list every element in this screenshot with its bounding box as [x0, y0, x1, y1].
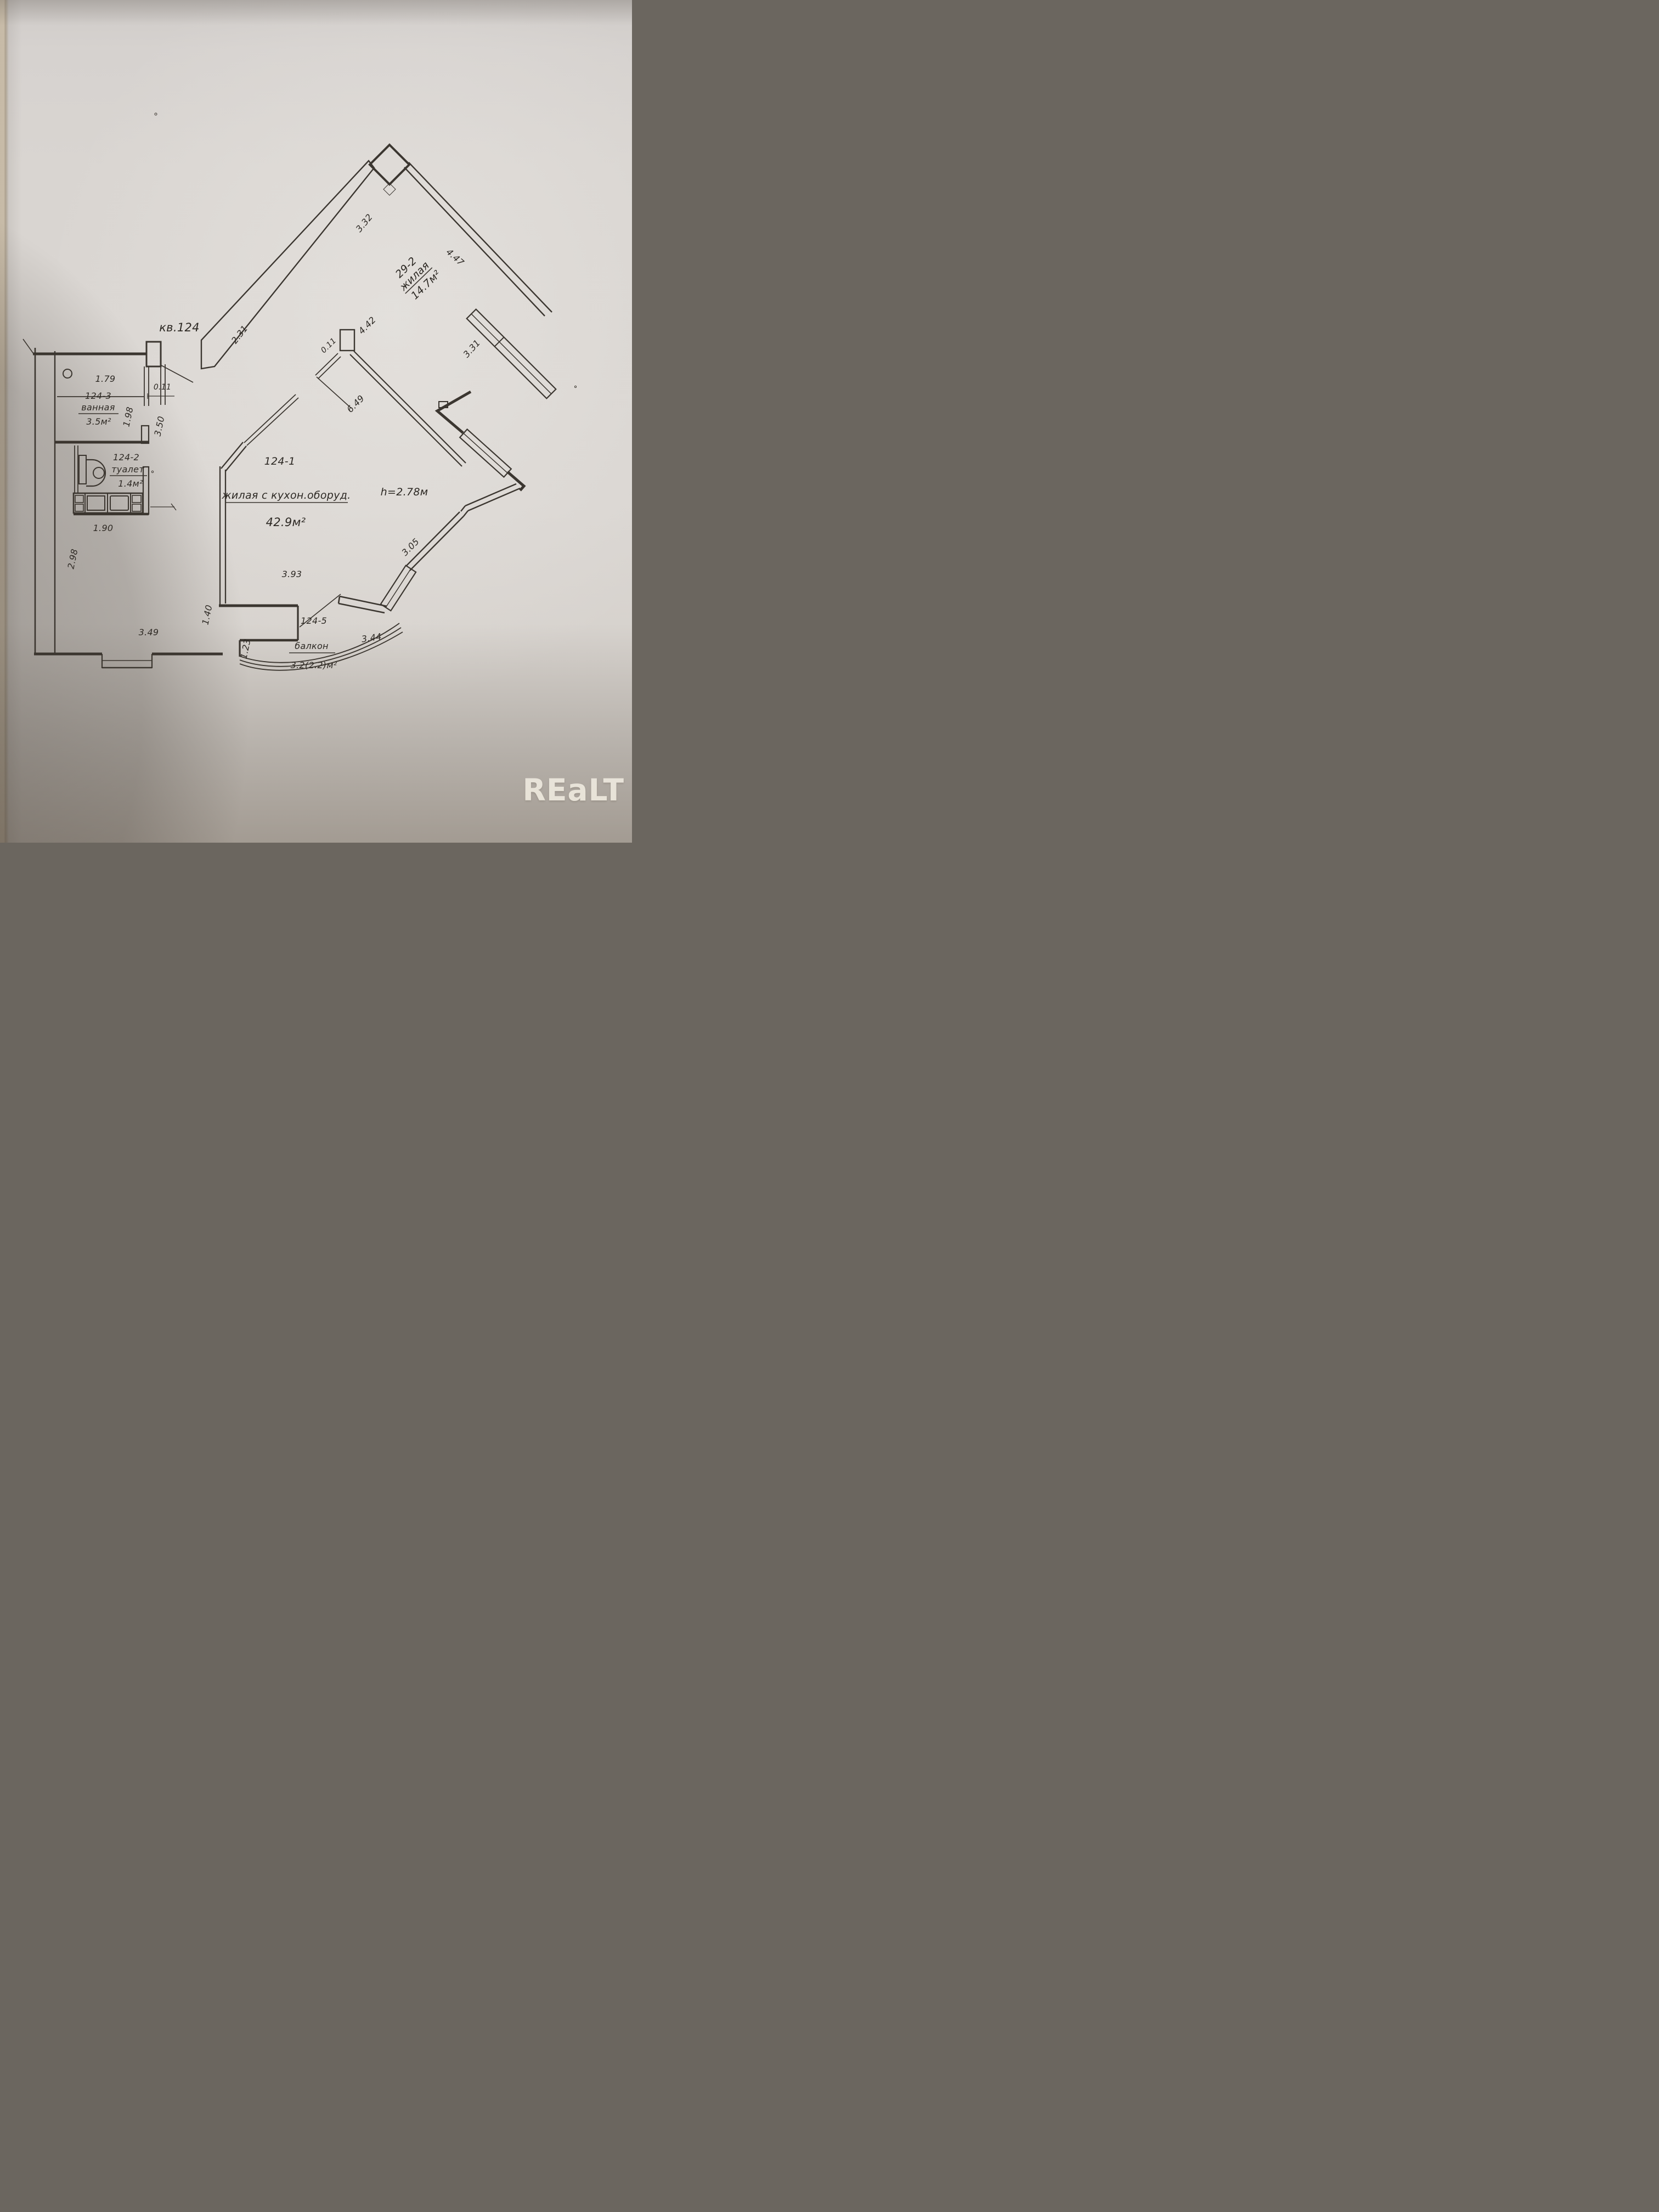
dim-3-49: 3.49 [139, 627, 159, 637]
room-id-124-2: 124-2 [113, 452, 139, 462]
ceiling-height-note: h=2.78м [381, 486, 428, 498]
room-name-124-1: жилая с кухон.оборуд. [221, 489, 351, 501]
floor-plan-photo: кв.124 3.32 2.31 4.47 4.42 0.11 6.49 3.3… [0, 0, 632, 843]
apartment-number-label: кв.124 [159, 321, 200, 334]
fixture-circle [63, 369, 72, 378]
paper-specks [151, 113, 576, 473]
toilet-fixture [79, 455, 105, 486]
room-name-124-2: туалет [111, 464, 144, 475]
dim-3-32: 3.32 [354, 212, 375, 234]
realt-watermark: REaLT [460, 772, 624, 808]
room-area-124-2: 1.4м² [118, 478, 143, 489]
stove-symbol [110, 496, 128, 510]
room-id-124-3: 124-3 [85, 391, 111, 401]
window-south [102, 654, 152, 668]
dim-0-11-corridor: 0.11 [319, 336, 338, 355]
room-area-124-1: 42.9м² [266, 516, 306, 529]
window-east [460, 429, 511, 477]
dim-2-98: 2.98 [65, 548, 80, 570]
dim-1-79: 1.79 [95, 374, 116, 384]
wall-end-cap [340, 330, 354, 351]
room-name-124-5: балкон [295, 641, 329, 651]
column-pier [370, 145, 409, 184]
dim-6-49: 6.49 [345, 393, 366, 414]
room-name-124-3: ванная [81, 402, 115, 413]
window-balcony [381, 566, 416, 611]
room-area-124-5: 3.2(2.2)м² [291, 660, 337, 670]
dim-4-42: 4.42 [356, 314, 377, 336]
room-label-29-2: 29-2 жилая 14.7м² [388, 249, 443, 304]
dim-1-90: 1.90 [93, 523, 114, 533]
room-area-124-3: 3.5м² [86, 416, 111, 427]
floor-plan-drawing: кв.124 3.32 2.31 4.47 4.42 0.11 6.49 3.3… [0, 0, 632, 843]
dim-3-44: 3.44 [361, 631, 382, 645]
dim-3-50: 3.50 [152, 415, 166, 437]
room-id-124-5: 124-5 [301, 616, 327, 626]
dim-1-40: 1.40 [200, 604, 214, 626]
sink-symbol [87, 496, 105, 510]
dim-1-98: 1.98 [121, 406, 135, 428]
dim-0-11-bath: 0.11 [154, 383, 171, 392]
room-id-124-1: 124-1 [264, 455, 296, 467]
window-29-2 [467, 309, 556, 399]
dim-3-93: 3.93 [282, 569, 302, 579]
kitchen-counter [74, 493, 143, 513]
wing-walls [201, 145, 556, 611]
entry-pier [146, 342, 161, 366]
entry-tick [23, 339, 34, 354]
dim-4-47: 4.47 [444, 247, 466, 268]
dim-3-31: 3.31 [461, 337, 483, 359]
